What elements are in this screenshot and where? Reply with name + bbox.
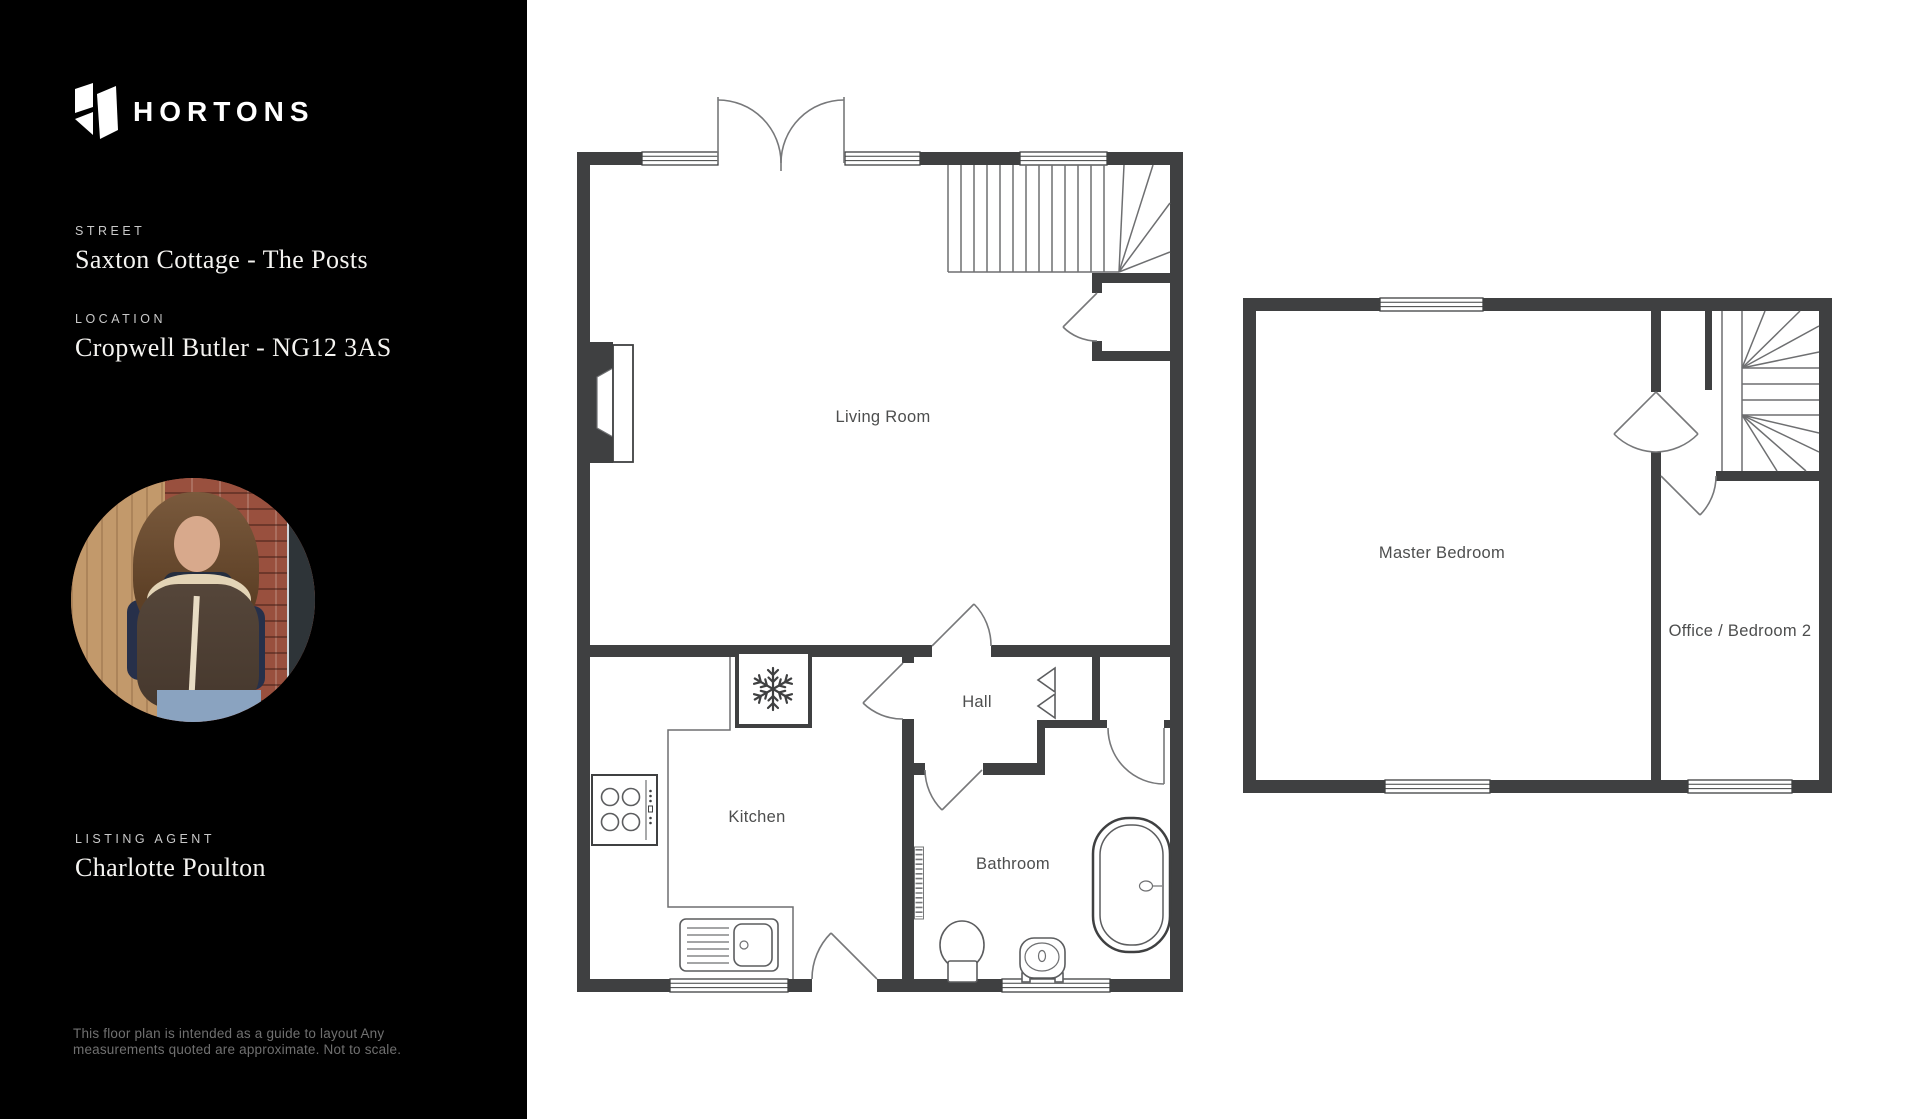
window <box>845 152 920 165</box>
fridge-freezer <box>737 652 810 726</box>
brand-name: HORTONS <box>133 96 315 128</box>
window <box>1020 152 1107 165</box>
window <box>642 152 718 165</box>
hortons-logo-icon <box>73 83 119 140</box>
office-door <box>1661 476 1716 515</box>
ground-floor-plan: Living Room Kitchen Hall Bathroom <box>577 97 1183 992</box>
basin <box>1020 938 1065 982</box>
toilet <box>940 921 984 982</box>
listing-agent-value: Charlotte Poulton <box>75 853 266 883</box>
photo-door-frame <box>287 478 315 722</box>
room-label-living-room: Living Room <box>835 408 930 426</box>
agent-face <box>174 516 220 572</box>
brand-logo: HORTONS <box>73 83 315 140</box>
first-floor-plan: Master Bedroom Office / Bedroom 2 <box>1243 298 1832 793</box>
location-label: LOCATION <box>75 312 392 326</box>
french-doors <box>718 97 844 171</box>
sink-unit <box>680 919 778 971</box>
window <box>1380 298 1483 311</box>
location-field: LOCATION Cropwell Butler - NG12 3AS <box>75 312 392 363</box>
room-label-hall: Hall <box>962 693 992 711</box>
window <box>1688 780 1792 793</box>
window <box>1385 780 1490 793</box>
disclaimer: This floor plan is intended as a guide t… <box>73 1026 445 1058</box>
location-value: Cropwell Butler - NG12 3AS <box>75 333 392 363</box>
sidebar: HORTONS STREET Saxton Cottage - The Post… <box>0 0 527 1119</box>
first-stairs <box>1722 311 1819 471</box>
room-label-bathroom: Bathroom <box>976 855 1050 873</box>
agent-jeans <box>157 690 261 722</box>
ground-stairs <box>948 165 1170 272</box>
listing-agent-label: LISTING AGENT <box>75 832 266 846</box>
street-label: STREET <box>75 224 368 238</box>
radiator <box>915 847 924 919</box>
street-field: STREET Saxton Cottage - The Posts <box>75 224 368 275</box>
bedroom-door <box>1614 392 1698 452</box>
room-label-office-bedroom2: Office / Bedroom 2 <box>1669 622 1812 640</box>
street-value: Saxton Cottage - The Posts <box>75 245 368 275</box>
listing-agent-field: LISTING AGENT Charlotte Poulton <box>75 832 266 883</box>
bath <box>1093 818 1170 952</box>
room-label-master-bedroom: Master Bedroom <box>1379 544 1505 562</box>
first-walls <box>1243 298 1832 793</box>
window <box>670 979 788 992</box>
disclaimer-line-1: This floor plan is intended as a guide t… <box>73 1026 445 1042</box>
hob <box>592 775 657 845</box>
cupboard-door <box>1063 293 1097 341</box>
back-door <box>812 933 877 979</box>
room-label-kitchen: Kitchen <box>728 808 785 826</box>
bifold-doors <box>1038 668 1055 718</box>
agent-photo <box>71 478 315 722</box>
disclaimer-line-2: measurements quoted are approximate. Not… <box>73 1042 445 1058</box>
floorplan-page: Living Room Kitchen Hall Bathroom <box>0 0 1920 1119</box>
